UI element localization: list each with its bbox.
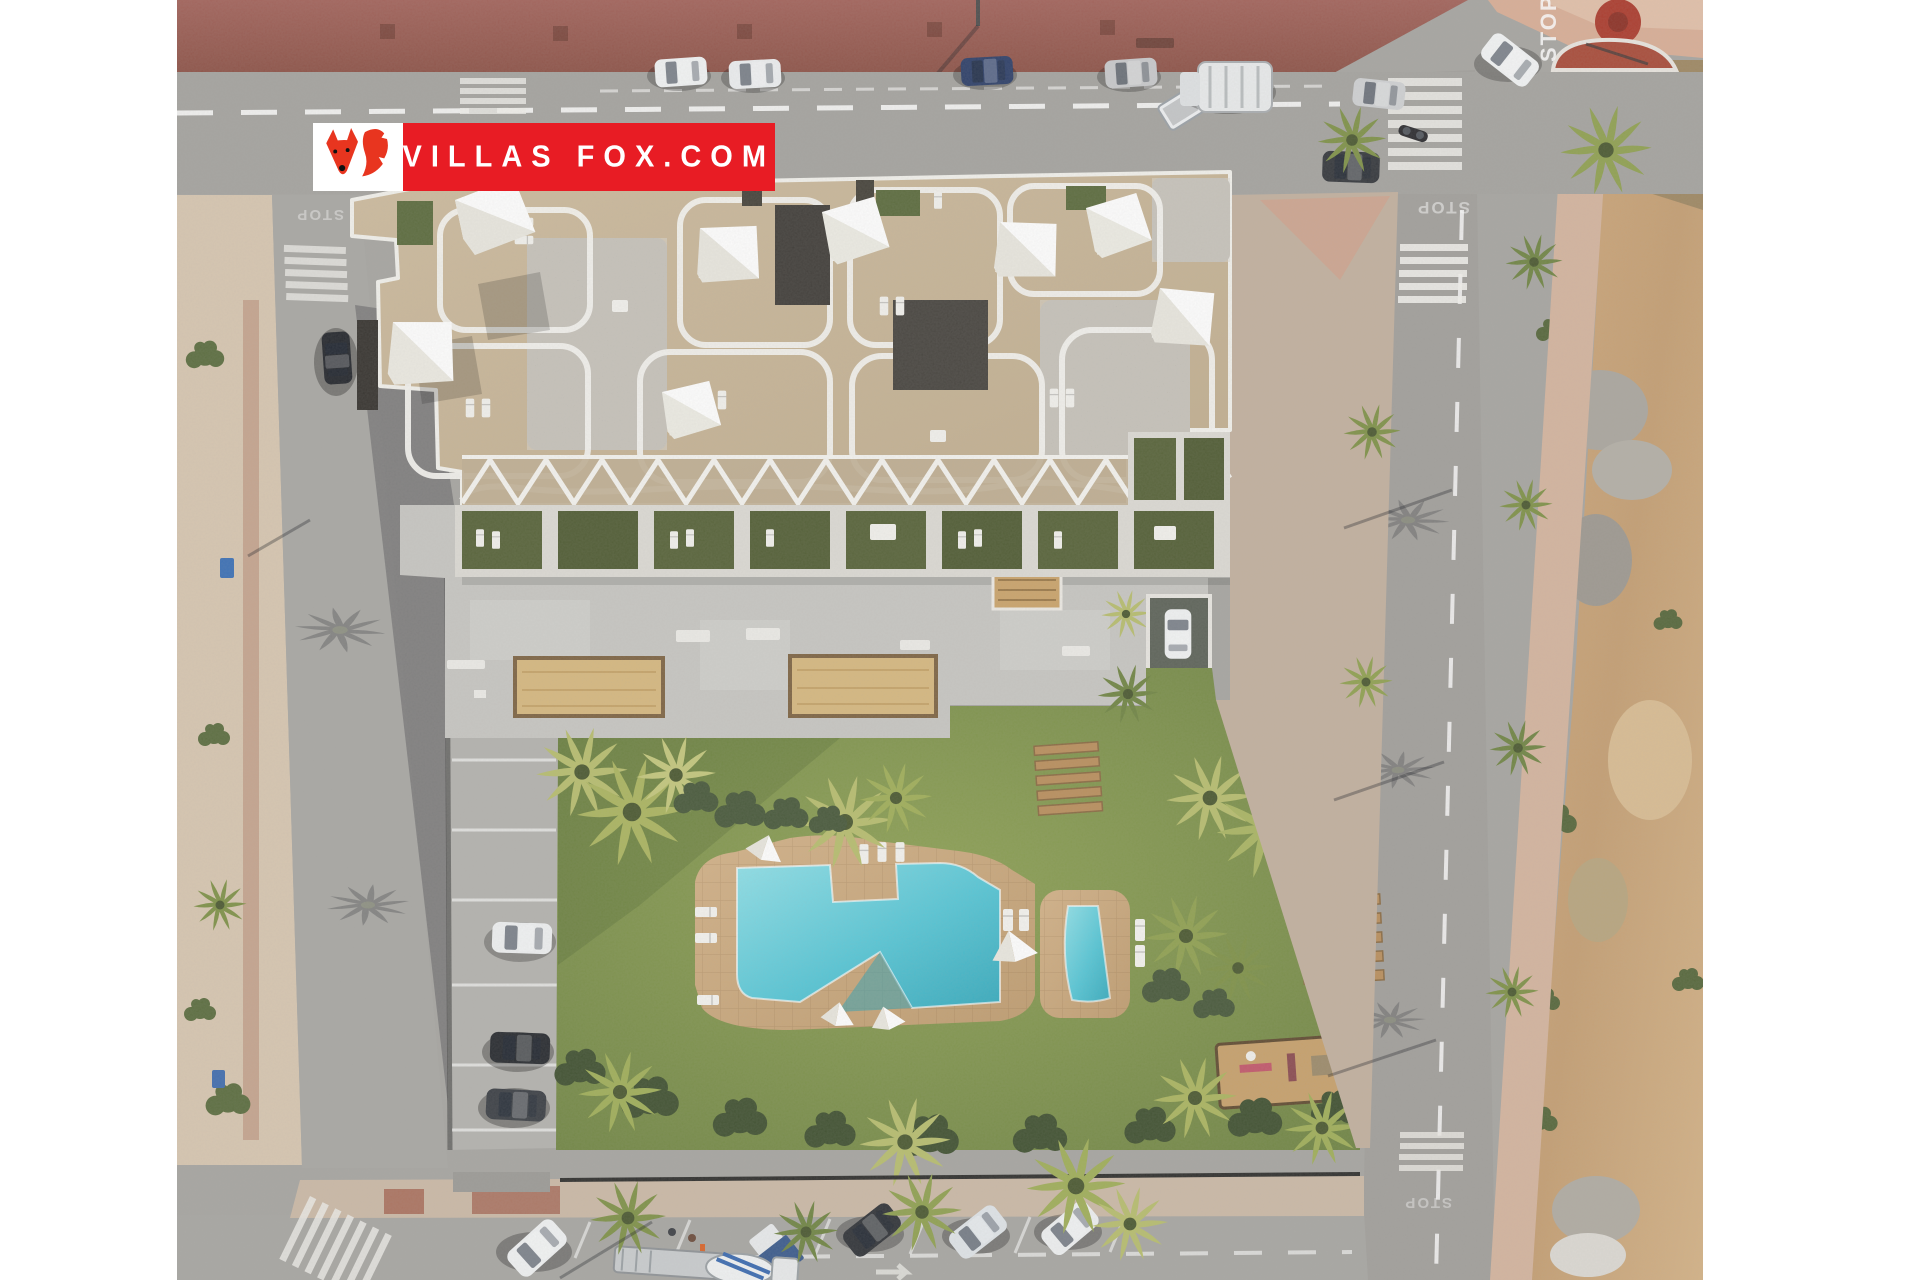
logo-icon-box: [313, 123, 403, 191]
photo-grain: [177, 0, 1703, 1280]
fox-logo-icon: [323, 128, 393, 186]
aerial-photo: STOP STOP STOP STOP: [0, 0, 1920, 1280]
logo-banner[interactable]: VILLAS FOX.COM: [313, 123, 775, 191]
brand-text: VILLAS FOX.COM: [403, 140, 776, 175]
logo-red-banner: VILLAS FOX.COM: [403, 123, 776, 191]
